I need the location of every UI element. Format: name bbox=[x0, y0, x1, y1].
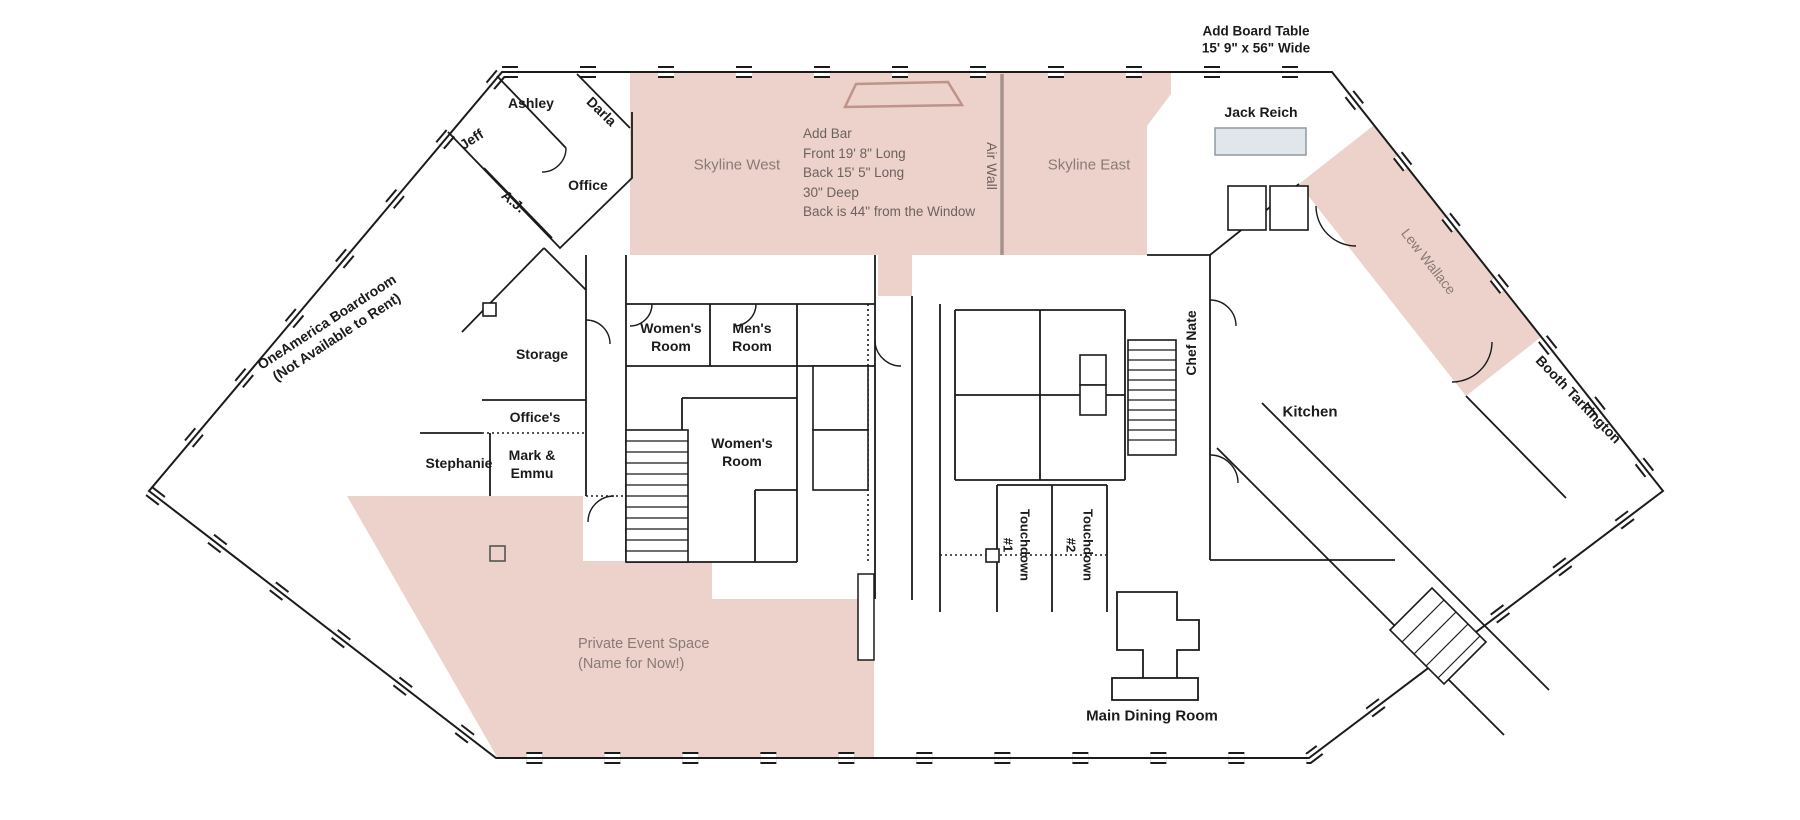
room-label-womens-room-upper: Women's Room bbox=[640, 320, 701, 356]
womens-upper-line1: Women's bbox=[640, 320, 701, 338]
floor-plan: Add Board Table 15' 9" x 56" Wide Add Ba… bbox=[0, 0, 1800, 820]
room-label-womens-room-lower: Women's Room bbox=[711, 435, 772, 471]
touchdown-1-name: Touchdown bbox=[1016, 509, 1033, 581]
room-label-skyline-west: Skyline West bbox=[694, 155, 780, 174]
room-label-main-dining: Main Dining Room bbox=[1086, 706, 1218, 725]
mens-room-line2: Room bbox=[732, 338, 772, 356]
room-label-kitchen: Kitchen bbox=[1282, 402, 1337, 421]
room-label-stephanie: Stephanie bbox=[426, 455, 493, 473]
room-label-offices: Office's bbox=[510, 409, 561, 427]
bar-note-line5: Back is 44" from the Window bbox=[803, 202, 975, 222]
room-label-mark-emmu: Mark & Emmu bbox=[509, 447, 556, 483]
room-label-chef-nate: Chef Nate bbox=[1183, 310, 1201, 375]
bar-note-line3: Back 15' 5" Long bbox=[803, 163, 975, 183]
mark-emmu-line1: Mark & bbox=[509, 447, 556, 465]
room-label-touchdown-1: Touchdown #1 bbox=[999, 509, 1032, 581]
floorplan-drawing bbox=[0, 0, 1800, 820]
private-event-line1: Private Event Space bbox=[578, 634, 709, 654]
bar-note-line1: Add Bar bbox=[803, 124, 975, 144]
room-label-private-event: Private Event Space (Name for Now!) bbox=[578, 634, 709, 674]
private-event-line2: (Name for Now!) bbox=[578, 654, 709, 674]
room-label-skyline-east: Skyline East bbox=[1048, 155, 1131, 174]
board-table-note: Add Board Table 15' 9" x 56" Wide bbox=[1202, 23, 1310, 58]
touchdown-2-number: #2 bbox=[1062, 509, 1079, 581]
board-table-note-line1: Add Board Table bbox=[1202, 23, 1310, 40]
jack-reich-table bbox=[1215, 128, 1306, 155]
room-label-air-wall: Air Wall bbox=[982, 142, 1000, 190]
room-label-touchdown-2: Touchdown #2 bbox=[1062, 509, 1095, 581]
touchdown-1-number: #1 bbox=[999, 509, 1016, 581]
board-table-note-line2: 15' 9" x 56" Wide bbox=[1202, 40, 1310, 57]
mark-emmu-line2: Emmu bbox=[509, 465, 556, 483]
womens-lower-line2: Room bbox=[711, 453, 772, 471]
womens-lower-line1: Women's bbox=[711, 435, 772, 453]
bar-note-line2: Front 19' 8" Long bbox=[803, 144, 975, 164]
room-label-office: Office bbox=[568, 177, 608, 195]
mens-room-line1: Men's bbox=[732, 320, 772, 338]
bar-note: Add Bar Front 19' 8" Long Back 15' 5" Lo… bbox=[803, 124, 975, 222]
room-label-ashley: Ashley bbox=[508, 95, 554, 113]
womens-upper-line2: Room bbox=[640, 338, 701, 356]
room-label-mens-room: Men's Room bbox=[732, 320, 772, 356]
touchdown-2-name: Touchdown bbox=[1079, 509, 1096, 581]
room-label-storage: Storage bbox=[516, 346, 568, 364]
room-label-jack-reich: Jack Reich bbox=[1224, 104, 1297, 122]
bar-note-line4: 30" Deep bbox=[803, 183, 975, 203]
